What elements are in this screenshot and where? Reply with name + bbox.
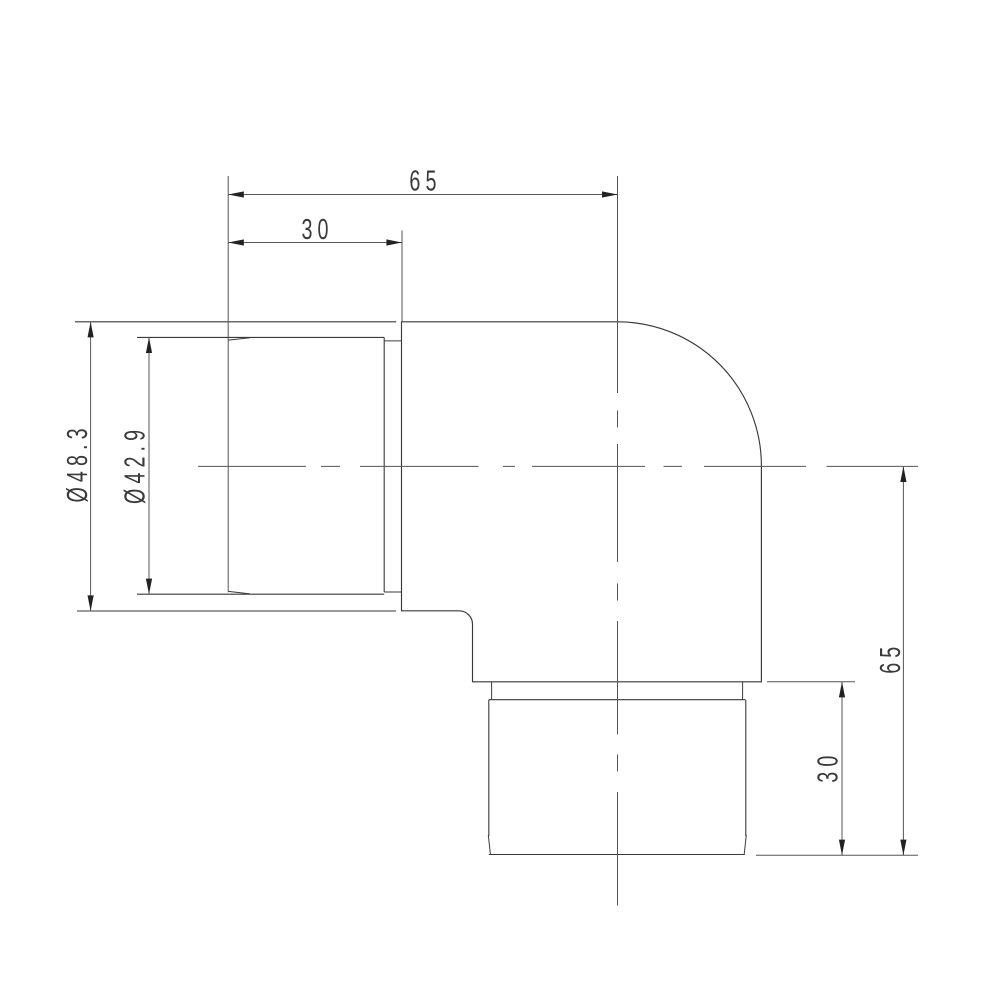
svg-text:30: 30 [301,214,333,246]
svg-text:65: 65 [409,166,441,198]
svg-text:65: 65 [875,642,907,674]
svg-text:Ø48.3: Ø48.3 [62,423,94,502]
svg-text:Ø42.9: Ø42.9 [120,425,152,504]
svg-text:30: 30 [813,751,845,783]
